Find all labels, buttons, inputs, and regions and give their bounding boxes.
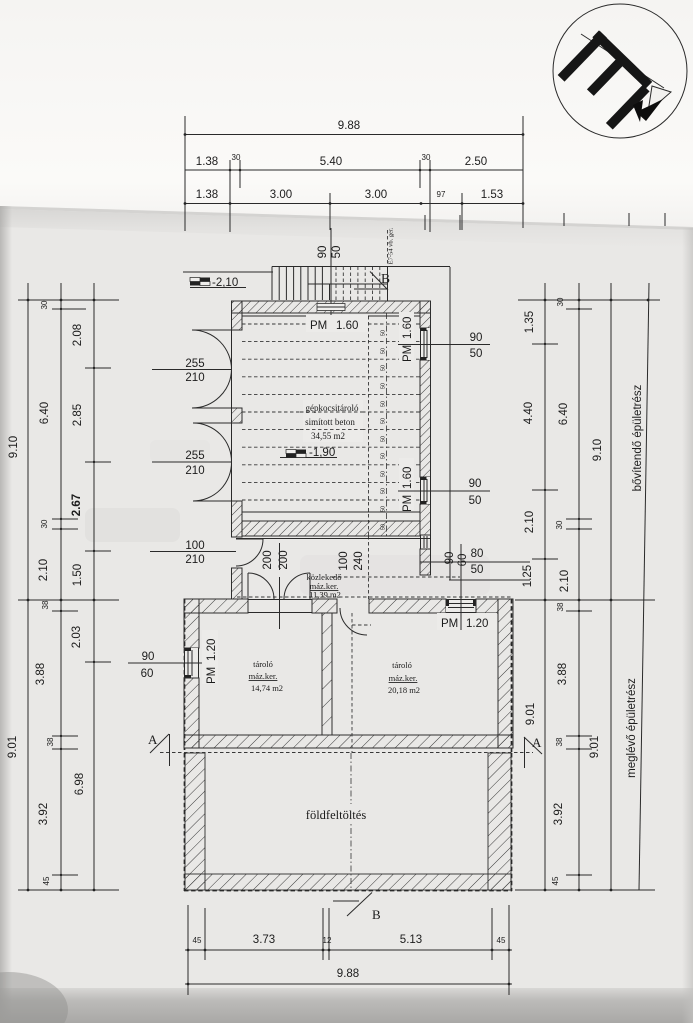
svg-text:-1,90: -1,90 <box>309 447 335 459</box>
svg-text:gépkocsitároló: gépkocsitároló <box>306 403 359 413</box>
svg-text:210: 210 <box>185 465 204 477</box>
svg-text:simított beton: simított beton <box>305 417 355 427</box>
svg-text:6.98: 6.98 <box>74 773 86 795</box>
svg-text:máz.ker.: máz.ker. <box>249 671 278 681</box>
svg-text:9.01: 9.01 <box>7 736 19 758</box>
svg-text:20,18 m2: 20,18 m2 <box>388 685 420 695</box>
svg-text:PM: PM <box>402 495 414 512</box>
svg-text:50: 50 <box>381 471 387 477</box>
svg-text:2.67: 2.67 <box>71 494 83 516</box>
svg-text:6.40: 6.40 <box>558 403 570 425</box>
svg-text:1.38: 1.38 <box>196 189 218 201</box>
svg-text:90: 90 <box>142 651 155 663</box>
svg-text:5.40: 5.40 <box>320 156 342 168</box>
svg-text:1.53: 1.53 <box>481 189 503 201</box>
svg-text:A: A <box>148 732 158 747</box>
svg-text:90: 90 <box>470 332 483 344</box>
svg-text:6.40: 6.40 <box>39 402 51 424</box>
svg-text:50: 50 <box>381 488 387 494</box>
svg-text:90: 90 <box>317 246 329 259</box>
svg-text:100: 100 <box>185 540 204 552</box>
svg-text:3.00: 3.00 <box>365 189 387 201</box>
svg-text:2.10: 2.10 <box>524 511 536 533</box>
svg-text:34,55 m2: 34,55 m2 <box>311 431 345 441</box>
svg-text:50: 50 <box>381 401 387 407</box>
svg-text:9.88: 9.88 <box>338 120 360 132</box>
svg-text:-2,10: -2,10 <box>212 277 238 289</box>
svg-text:38: 38 <box>46 737 55 746</box>
svg-text:tároló: tároló <box>253 659 273 669</box>
svg-text:50: 50 <box>381 348 387 354</box>
svg-text:3.00: 3.00 <box>270 189 292 201</box>
svg-text:tároló: tároló <box>392 660 412 670</box>
svg-text:90: 90 <box>469 478 482 490</box>
svg-text:1.20: 1.20 <box>466 618 488 630</box>
svg-text:9.01: 9.01 <box>525 703 537 725</box>
svg-text:11,39 m2: 11,39 m2 <box>309 590 341 600</box>
svg-text:A: A <box>532 735 542 750</box>
svg-text:50: 50 <box>381 418 387 424</box>
svg-text:50: 50 <box>381 330 387 336</box>
svg-text:máz.ker.: máz.ker. <box>389 673 418 683</box>
svg-text:B: B <box>381 271 390 286</box>
svg-text:3.73: 3.73 <box>253 934 275 946</box>
svg-text:2.10: 2.10 <box>559 570 571 592</box>
svg-text:5.13: 5.13 <box>400 934 422 946</box>
svg-text:3.88: 3.88 <box>35 663 47 685</box>
svg-text:255: 255 <box>185 358 204 370</box>
svg-text:50: 50 <box>470 348 483 360</box>
svg-text:45: 45 <box>42 876 51 885</box>
svg-text:30: 30 <box>40 519 49 528</box>
svg-text:3.92: 3.92 <box>553 803 565 825</box>
svg-text:2.50: 2.50 <box>465 156 487 168</box>
svg-text:1.60: 1.60 <box>402 317 414 339</box>
svg-text:PM: PM <box>441 618 458 630</box>
svg-text:PM: PM <box>310 320 327 332</box>
svg-text:12: 12 <box>323 936 332 945</box>
svg-text:2.85: 2.85 <box>72 404 84 426</box>
svg-text:1.50: 1.50 <box>72 564 84 586</box>
svg-text:38: 38 <box>556 602 565 611</box>
svg-text:45: 45 <box>193 936 202 945</box>
svg-text:2.08: 2.08 <box>72 324 84 346</box>
svg-text:3.92: 3.92 <box>38 803 50 825</box>
svg-text:1.20: 1.20 <box>206 639 218 661</box>
svg-text:97: 97 <box>437 190 446 199</box>
svg-text:50: 50 <box>381 365 387 371</box>
svg-text:3.88: 3.88 <box>557 663 569 685</box>
svg-text:45: 45 <box>551 876 560 885</box>
svg-text:1.25: 1.25 <box>522 565 534 587</box>
svg-text:4.40: 4.40 <box>523 402 535 424</box>
svg-text:50: 50 <box>469 495 482 507</box>
svg-text:50: 50 <box>381 524 387 530</box>
svg-text:2.03: 2.03 <box>71 626 83 648</box>
svg-text:210: 210 <box>185 554 204 566</box>
svg-text:50: 50 <box>331 246 343 259</box>
svg-text:30: 30 <box>556 297 565 306</box>
svg-text:1.35: 1.35 <box>524 311 536 333</box>
svg-text:9.01: 9.01 <box>589 736 601 758</box>
svg-text:14,74 m2: 14,74 m2 <box>251 683 283 693</box>
svg-text:B: B <box>372 907 381 922</box>
svg-text:30: 30 <box>232 153 241 162</box>
svg-text:1.60: 1.60 <box>402 467 414 489</box>
svg-text:földfeltöltés: földfeltöltés <box>306 808 367 822</box>
svg-text:50: 50 <box>471 564 484 576</box>
svg-text:30: 30 <box>40 300 49 309</box>
svg-text:1.60: 1.60 <box>336 320 358 332</box>
svg-text:30: 30 <box>555 520 564 529</box>
svg-text:E7-54 vb. ger.: E7-54 vb. ger. <box>388 227 395 264</box>
svg-text:100: 100 <box>338 551 350 570</box>
svg-text:60: 60 <box>141 668 154 680</box>
svg-text:60: 60 <box>457 554 469 567</box>
svg-text:80: 80 <box>471 548 484 560</box>
svg-text:PM: PM <box>206 667 218 684</box>
svg-text:50: 50 <box>381 506 387 512</box>
svg-text:50: 50 <box>381 436 387 442</box>
svg-text:30: 30 <box>422 153 431 162</box>
svg-text:200: 200 <box>262 550 274 569</box>
svg-text:9.10: 9.10 <box>592 439 604 461</box>
svg-text:meglévő épületrész: meglévő épületrész <box>626 678 638 778</box>
svg-text:PM: PM <box>402 345 414 362</box>
svg-text:9.10: 9.10 <box>8 436 20 458</box>
svg-text:90: 90 <box>444 552 456 565</box>
svg-text:50: 50 <box>381 383 387 389</box>
svg-text:50: 50 <box>381 453 387 459</box>
svg-text:240: 240 <box>353 551 365 570</box>
svg-text:38: 38 <box>555 737 564 746</box>
svg-text:38: 38 <box>41 600 50 609</box>
svg-text:2.10: 2.10 <box>38 559 50 581</box>
svg-text:1.38: 1.38 <box>196 156 218 168</box>
svg-text:45: 45 <box>497 936 506 945</box>
svg-text:bővítendő épületrész: bővítendő épületrész <box>632 384 644 491</box>
svg-text:9.88: 9.88 <box>337 968 359 980</box>
svg-text:210: 210 <box>185 372 204 384</box>
svg-text:255: 255 <box>185 450 204 462</box>
